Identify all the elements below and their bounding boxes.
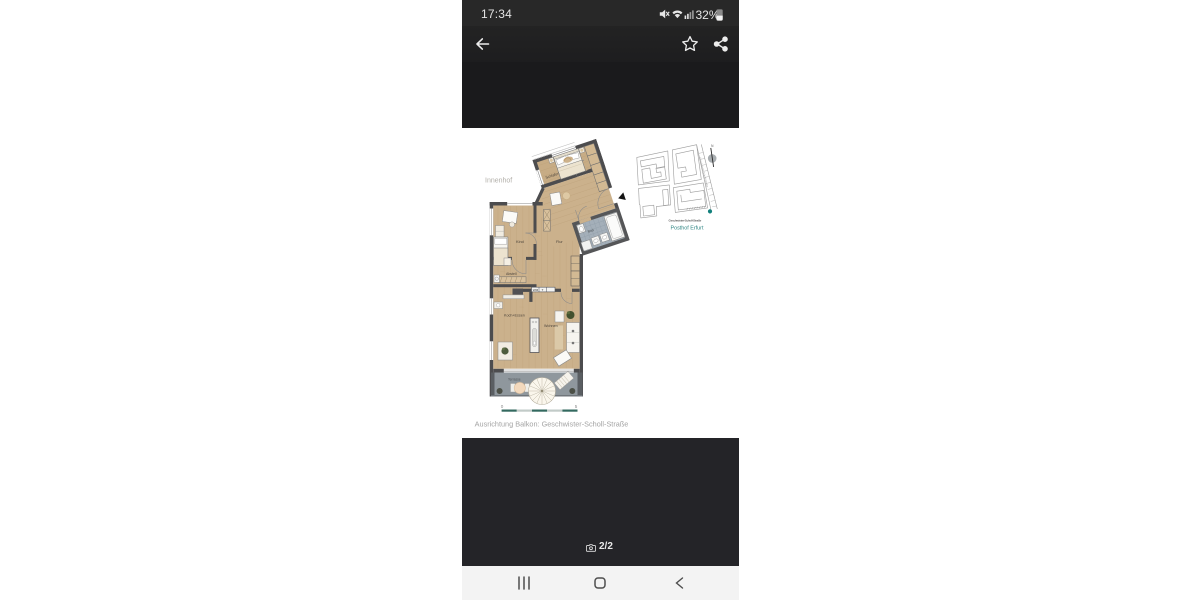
svg-text:Posthof Erfurt: Posthof Erfurt [671,226,704,232]
svg-text:32%: 32% [696,8,720,22]
svg-text:5: 5 [575,404,578,409]
svg-text:Geschwister-Scholl-Straße: Geschwister-Scholl-Straße [668,218,701,222]
svg-text:Kind: Kind [516,239,524,244]
svg-text:N: N [711,144,714,148]
svg-text:T: T [542,288,544,292]
svg-text:Ausrichtung Balkon: Geschwiste: Ausrichtung Balkon: Geschwister-Scholl-S… [475,419,629,428]
svg-text:0: 0 [501,404,504,409]
svg-text:WM: WM [533,288,539,292]
svg-text:Flur: Flur [556,239,563,244]
svg-text:Koch+Essen: Koch+Essen [504,314,525,318]
svg-text:Innenhof: Innenhof [485,178,512,185]
svg-text:Terrasse: Terrasse [508,378,521,382]
svg-text:Abstell: Abstell [506,272,517,276]
svg-text:Wohnen: Wohnen [544,324,558,328]
